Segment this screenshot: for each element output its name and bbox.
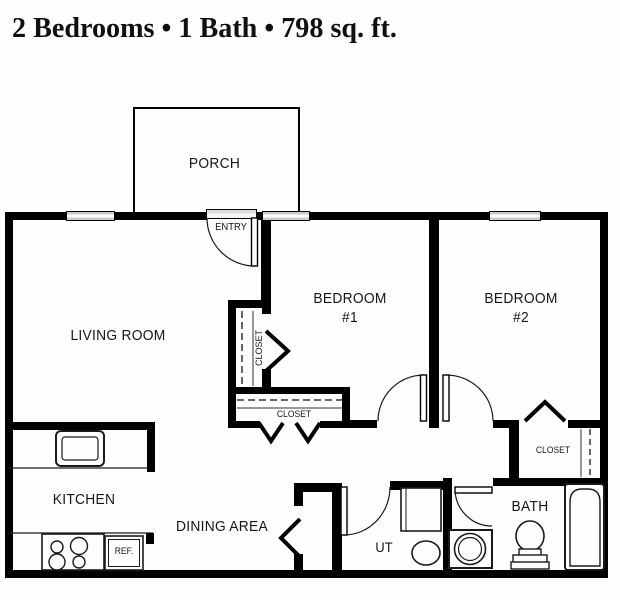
label-bedroom1-number: #1 — [295, 310, 405, 326]
label-refrigerator: REF. — [106, 547, 142, 557]
label-entry: ENTRY — [209, 222, 254, 233]
utility-tub — [412, 541, 440, 565]
label-closet-hall: CLOSET — [267, 410, 321, 420]
label-kitchen: KITCHEN — [38, 492, 130, 508]
kitchen-sink-basin — [62, 437, 98, 460]
label-bedroom1-name: BEDROOM — [295, 291, 405, 307]
bedroom2-door-arc — [446, 375, 493, 421]
toilet-step-3 — [511, 562, 549, 569]
stove-burner-1 — [51, 541, 63, 553]
label-porch: PORCH — [140, 156, 290, 172]
utility-door-panel — [341, 487, 347, 535]
label-living-room: LIVING ROOM — [44, 328, 191, 344]
bath-door-arc — [455, 489, 492, 526]
closet2-bifold-door-right — [296, 423, 320, 441]
label-utility: UT — [366, 540, 403, 555]
label-closet-bedroom1: CLOSET — [255, 319, 265, 376]
closet2-bifold-door-left — [259, 423, 283, 441]
label-bath: BATH — [498, 499, 562, 515]
utility-door-arc — [344, 487, 390, 535]
washer — [401, 488, 441, 531]
label-bedroom2-number: #2 — [466, 310, 576, 326]
toilet-bowl — [516, 521, 544, 551]
bedroom2-closet-bifold-door — [525, 402, 565, 421]
stove-burner-3 — [49, 554, 65, 570]
stove-burner-4 — [73, 556, 85, 568]
bath-door-panel — [455, 487, 492, 493]
stove-burner-2 — [71, 538, 88, 555]
bedroom2-door-panel — [443, 375, 449, 421]
bedroom1-door-arc — [378, 375, 424, 421]
bathtub-inner — [570, 489, 600, 566]
vanity-sink-inner — [459, 538, 482, 561]
label-dining-area: DINING AREA — [158, 519, 287, 535]
label-closet-bedroom2: CLOSET — [526, 446, 580, 456]
bedroom1-door-panel — [421, 375, 427, 421]
label-bedroom2-name: BEDROOM — [466, 291, 576, 307]
floor-plan: 2 Bedrooms • 1 Bath • 798 sq. ft. — [0, 0, 620, 600]
closet1-bifold-door — [266, 331, 288, 371]
